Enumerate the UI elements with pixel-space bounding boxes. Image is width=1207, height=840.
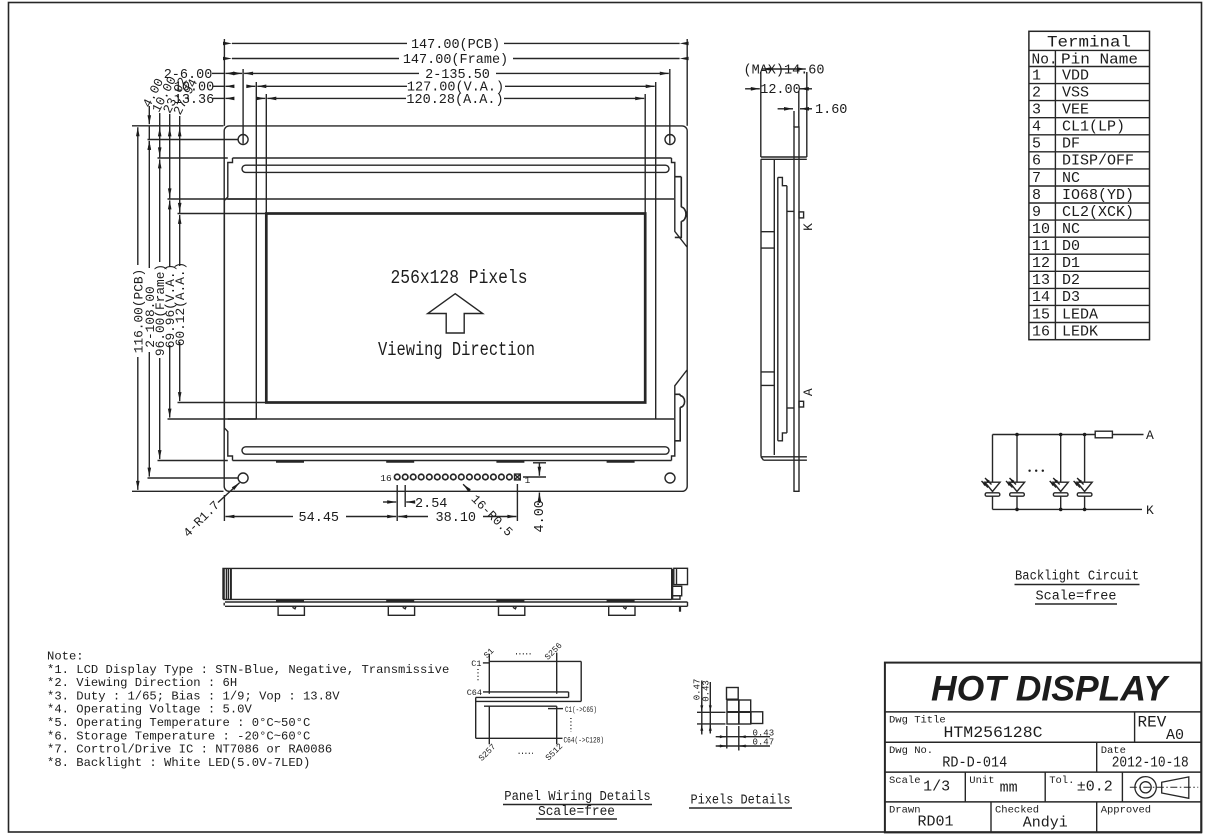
svg-text:3: 3 (1032, 102, 1041, 119)
svg-text:DF: DF (1062, 136, 1080, 153)
svg-text:A: A (801, 388, 816, 396)
svg-text:mm: mm (1000, 780, 1018, 797)
svg-text:C64(->C128): C64(->C128) (564, 736, 605, 746)
svg-text:LEDK: LEDK (1062, 323, 1098, 340)
svg-text:7: 7 (1032, 170, 1041, 187)
svg-text:Scale=free: Scale=free (1036, 590, 1117, 605)
svg-text:*7. Cortrol/Drive IC : NT7086: *7. Cortrol/Drive IC : NT7086 or RA0086 (47, 743, 332, 757)
svg-text:Note:: Note: (47, 650, 84, 664)
svg-text:Scale=free: Scale=free (538, 805, 615, 820)
svg-text:1.60: 1.60 (815, 103, 847, 118)
svg-text:2.54: 2.54 (415, 497, 447, 512)
svg-text:*8. Backlight : White LED(5.0V: *8. Backlight : White LED(5.0V-7LED) (47, 756, 310, 770)
svg-text:Viewing Direction: Viewing Direction (378, 339, 535, 361)
svg-text:Terminal: Terminal (1047, 34, 1131, 52)
svg-text:A: A (1146, 428, 1154, 443)
svg-text:D3: D3 (1062, 289, 1080, 306)
svg-text:*4. Operating Voltage : 5.0V: *4. Operating Voltage : 5.0V (47, 703, 252, 717)
svg-text:LEDA: LEDA (1062, 306, 1098, 323)
svg-text:(MAX)14.60: (MAX)14.60 (743, 64, 824, 79)
svg-text:16: 16 (1032, 323, 1050, 340)
svg-text:5: 5 (1032, 136, 1041, 153)
svg-text:D1: D1 (1062, 255, 1080, 272)
svg-text:CL1(LP): CL1(LP) (1062, 119, 1125, 136)
svg-text:14: 14 (1032, 289, 1050, 306)
svg-text:2: 2 (1032, 84, 1041, 101)
svg-text:120.28(A.A.): 120.28(A.A.) (406, 93, 503, 108)
svg-text:12: 12 (1032, 255, 1050, 272)
svg-text:S1: S1 (482, 646, 496, 660)
svg-text:DISP/OFF: DISP/OFF (1062, 153, 1134, 170)
svg-text:NC: NC (1062, 170, 1080, 187)
svg-text:Pixels Details: Pixels Details (691, 794, 791, 809)
svg-text:VSS: VSS (1062, 84, 1089, 101)
svg-text:IO68(YD): IO68(YD) (1062, 187, 1134, 204)
svg-text:RD01: RD01 (917, 814, 953, 831)
svg-text:VEE: VEE (1062, 102, 1089, 119)
svg-text:9: 9 (1032, 204, 1041, 221)
svg-text:Scale: Scale (889, 775, 921, 787)
svg-text:*2. Viewing Direction : 6H: *2. Viewing Direction : 6H (47, 676, 237, 690)
svg-text:6: 6 (1032, 153, 1041, 170)
svg-text:Dwg Title: Dwg Title (889, 715, 946, 727)
svg-text:1: 1 (1032, 67, 1041, 84)
svg-text:K: K (1146, 503, 1154, 518)
svg-text:K: K (801, 223, 816, 231)
svg-text:*1. LCD Display Type : STN-Blu: *1. LCD Display Type : STN-Blue, Negativ… (47, 663, 449, 677)
svg-text:54.45: 54.45 (299, 511, 340, 526)
svg-text:256x128 Pixels: 256x128 Pixels (391, 267, 528, 289)
svg-text:S512: S512 (544, 742, 566, 764)
svg-text:4: 4 (1032, 119, 1041, 136)
svg-text:4.00: 4.00 (533, 500, 548, 532)
svg-text:12.00: 12.00 (760, 83, 801, 98)
svg-text:NC: NC (1062, 221, 1080, 238)
svg-text:REV: REV (1138, 714, 1167, 732)
svg-text:60.12(A.A.): 60.12(A.A.) (173, 262, 188, 346)
svg-text:11: 11 (1032, 238, 1050, 255)
svg-text:1/3: 1/3 (923, 779, 950, 796)
svg-text:38.10: 38.10 (436, 511, 477, 526)
svg-text:RD-D-014: RD-D-014 (942, 755, 1007, 772)
svg-text:Tol.: Tol. (1049, 775, 1074, 787)
svg-text:10: 10 (1032, 221, 1050, 238)
svg-text:147.00(Frame): 147.00(Frame) (403, 53, 508, 68)
svg-text:Panel Wiring Details: Panel Wiring Details (504, 790, 650, 805)
svg-text:VDD: VDD (1062, 67, 1089, 84)
svg-text:C64: C64 (467, 688, 482, 698)
svg-text:16: 16 (380, 473, 392, 484)
svg-text:Drawn: Drawn (889, 805, 921, 817)
svg-text:2012-10-18: 2012-10-18 (1112, 755, 1189, 772)
svg-text:147.00(PCB): 147.00(PCB) (411, 38, 500, 53)
svg-text:HOT DISPLAY: HOT DISPLAY (931, 670, 1170, 709)
svg-text:Dwg No.: Dwg No. (889, 745, 933, 757)
svg-text:8: 8 (1032, 187, 1041, 204)
svg-text:*6. Storage Temperature : -20°: *6. Storage Temperature : -20°C~60°C (47, 729, 310, 743)
svg-text:*3. Duty : 1/65; Bias : 1/9; V: *3. Duty : 1/65; Bias : 1/9; Vop : 13.8V (47, 689, 340, 703)
svg-text:0.47: 0.47 (753, 738, 775, 748)
svg-text:C1(->C65): C1(->C65) (565, 705, 597, 715)
svg-text:Approved: Approved (1101, 805, 1151, 817)
svg-text:S256: S256 (543, 641, 565, 663)
svg-text:±0.2: ±0.2 (1077, 779, 1113, 796)
svg-text:HTM256128C: HTM256128C (944, 724, 1043, 742)
svg-text:S257: S257 (477, 742, 499, 764)
svg-text:D2: D2 (1062, 272, 1080, 289)
svg-text:Andyi: Andyi (1023, 815, 1068, 832)
svg-text:C1: C1 (471, 659, 481, 669)
svg-text:4-R1.7: 4-R1.7 (181, 499, 223, 541)
svg-text:D0: D0 (1062, 238, 1080, 255)
svg-text:Unit: Unit (969, 775, 994, 787)
svg-text:15: 15 (1032, 306, 1050, 323)
svg-text:Backlight Circuit: Backlight Circuit (1015, 570, 1139, 585)
svg-text:CL2(XCK): CL2(XCK) (1062, 204, 1134, 221)
svg-text:*5. Operating Temperature : 0°: *5. Operating Temperature : 0°C~50°C (47, 716, 310, 730)
svg-text:13: 13 (1032, 272, 1050, 289)
